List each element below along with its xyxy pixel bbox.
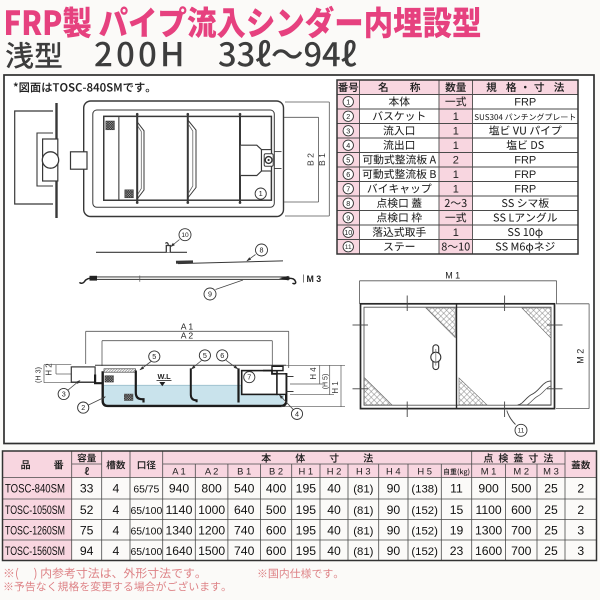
svg-text:75: 75 (80, 524, 94, 538)
svg-text:M 1: M 1 (481, 466, 497, 477)
svg-text:19: 19 (450, 524, 464, 538)
svg-text:90: 90 (387, 544, 401, 558)
svg-text:B 1: B 1 (237, 466, 251, 477)
svg-text:11: 11 (518, 428, 525, 435)
svg-text:40: 40 (327, 503, 341, 517)
svg-text:600: 600 (266, 524, 287, 538)
svg-text:FRP: FRP (514, 184, 536, 196)
svg-text:(152): (152) (411, 546, 438, 558)
svg-text:1: 1 (453, 126, 459, 138)
svg-text:1: 1 (453, 111, 459, 123)
svg-text:940: 940 (169, 482, 190, 496)
svg-text:(138): (138) (411, 484, 438, 496)
svg-text:4: 4 (346, 141, 350, 150)
svg-text:33: 33 (80, 482, 94, 496)
svg-text:2: 2 (577, 503, 584, 517)
svg-text:A 1: A 1 (172, 466, 186, 477)
svg-text:H 4: H 4 (386, 466, 401, 477)
svg-text:195: 195 (296, 524, 317, 538)
svg-text:500: 500 (511, 482, 532, 496)
svg-text:1140: 1140 (166, 503, 193, 517)
svg-text:195: 195 (296, 482, 317, 496)
svg-text:M 3: M 3 (543, 466, 559, 477)
svg-text:6: 6 (346, 170, 350, 179)
svg-text:600: 600 (511, 503, 532, 517)
svg-text:540: 540 (234, 482, 255, 496)
svg-text:1: 1 (259, 189, 263, 198)
svg-text:2: 2 (577, 482, 584, 496)
svg-text:700: 700 (511, 544, 532, 558)
svg-text:11: 11 (345, 244, 352, 251)
svg-text:1340: 1340 (166, 524, 193, 538)
svg-text:1200: 1200 (198, 524, 225, 538)
svg-text:2: 2 (346, 112, 350, 121)
svg-text:640: 640 (234, 503, 255, 517)
svg-text:40: 40 (327, 524, 341, 538)
svg-text:M 3: M 3 (307, 274, 322, 284)
svg-text:5: 5 (203, 351, 207, 360)
svg-text:740: 740 (234, 544, 255, 558)
svg-text:5: 5 (152, 352, 156, 361)
svg-text:FRP: FRP (514, 155, 536, 167)
svg-text:25: 25 (544, 544, 558, 558)
svg-text:7: 7 (346, 184, 350, 193)
svg-text:1000: 1000 (198, 503, 225, 517)
svg-text:740: 740 (234, 524, 255, 538)
svg-text:10: 10 (344, 228, 352, 237)
svg-text:H 5: H 5 (417, 466, 432, 477)
svg-text:4: 4 (295, 409, 299, 418)
svg-text:A 2: A 2 (181, 331, 194, 341)
svg-text:(81): (81) (353, 526, 373, 538)
svg-text:1: 1 (453, 227, 459, 239)
svg-text:3: 3 (346, 126, 350, 135)
svg-text:900: 900 (478, 482, 499, 496)
svg-text:9: 9 (208, 290, 212, 299)
svg-text:52: 52 (80, 503, 94, 517)
svg-text:94: 94 (80, 544, 94, 558)
svg-text:B 1: B 1 (317, 153, 327, 166)
svg-text:40: 40 (327, 544, 341, 558)
svg-text:(81): (81) (353, 484, 373, 496)
svg-text:H 2: H 2 (327, 466, 342, 477)
svg-text:H 4: H 4 (309, 367, 318, 380)
svg-text:23: 23 (450, 544, 464, 558)
svg-text:(81): (81) (353, 505, 373, 517)
svg-text:700: 700 (511, 524, 532, 538)
svg-text:1500: 1500 (198, 544, 225, 558)
svg-text:8: 8 (260, 246, 264, 255)
svg-text:6: 6 (220, 351, 224, 360)
svg-text:4: 4 (112, 503, 119, 517)
svg-text:B 2: B 2 (306, 153, 316, 166)
svg-text:H 2: H 2 (45, 363, 54, 375)
svg-text:(152): (152) (411, 526, 438, 538)
svg-text:10: 10 (181, 232, 189, 239)
svg-text:40: 40 (327, 482, 341, 496)
svg-text:TOSC-1260SM: TOSC-1260SM (5, 525, 65, 538)
svg-text:65/100: 65/100 (130, 506, 162, 517)
svg-text:600: 600 (266, 544, 287, 558)
svg-text:2: 2 (81, 403, 85, 412)
svg-text:1100: 1100 (475, 503, 501, 517)
svg-text:B 2: B 2 (269, 466, 283, 477)
svg-text:TOSC-1050SM: TOSC-1050SM (5, 504, 65, 517)
svg-text:1640: 1640 (166, 544, 193, 558)
svg-text:2: 2 (453, 155, 459, 167)
svg-text:1: 1 (453, 140, 459, 152)
svg-text:25: 25 (544, 482, 558, 496)
svg-text:(152): (152) (411, 505, 438, 517)
svg-text:M 1: M 1 (445, 271, 460, 281)
svg-text:90: 90 (387, 524, 401, 538)
svg-text:H 1: H 1 (299, 466, 314, 477)
svg-text:1: 1 (346, 97, 350, 106)
svg-text:65/100: 65/100 (130, 527, 162, 538)
svg-text:7: 7 (247, 373, 251, 382)
svg-text:195: 195 (296, 544, 317, 558)
svg-text:8: 8 (346, 199, 350, 208)
svg-text:A 2: A 2 (205, 466, 219, 477)
svg-text:TOSC-840SM: TOSC-840SM (5, 483, 65, 496)
svg-text:65/100: 65/100 (130, 547, 162, 558)
svg-text:3: 3 (577, 524, 584, 538)
svg-text:25: 25 (544, 524, 558, 538)
svg-text:1: 1 (453, 169, 459, 181)
svg-text:15: 15 (450, 503, 464, 517)
svg-text:FRP: FRP (514, 97, 536, 109)
svg-text:4: 4 (112, 544, 119, 558)
svg-text:65/75: 65/75 (133, 485, 159, 496)
svg-text:3: 3 (577, 544, 584, 558)
svg-text:25: 25 (544, 503, 558, 517)
svg-text:9: 9 (346, 213, 350, 222)
svg-text:TOSC-1560SM: TOSC-1560SM (5, 545, 65, 558)
svg-text:M 2: M 2 (576, 349, 586, 364)
svg-text:195: 195 (296, 503, 317, 517)
svg-text:M 2: M 2 (513, 466, 529, 477)
svg-text:500: 500 (266, 503, 287, 517)
svg-text:W.L: W.L (158, 372, 172, 381)
svg-text:4: 4 (112, 524, 119, 538)
svg-text:H 3: H 3 (356, 466, 371, 477)
svg-text:3: 3 (62, 390, 66, 399)
svg-text:(81): (81) (353, 546, 373, 558)
svg-text:(H 5): (H 5) (322, 374, 329, 390)
svg-text:5: 5 (346, 155, 350, 164)
svg-text:H 1: H 1 (331, 381, 340, 393)
svg-text:800: 800 (201, 482, 222, 496)
svg-text:(H 3): (H 3) (33, 367, 42, 383)
svg-text:FRP: FRP (514, 169, 536, 181)
svg-text:11: 11 (450, 482, 463, 496)
svg-text:4: 4 (112, 482, 119, 496)
svg-text:90: 90 (387, 482, 401, 496)
svg-text:1: 1 (453, 184, 459, 196)
svg-text:400: 400 (266, 482, 287, 496)
svg-text:1300: 1300 (475, 524, 502, 538)
svg-text:90: 90 (387, 503, 401, 517)
svg-text:1600: 1600 (475, 544, 502, 558)
